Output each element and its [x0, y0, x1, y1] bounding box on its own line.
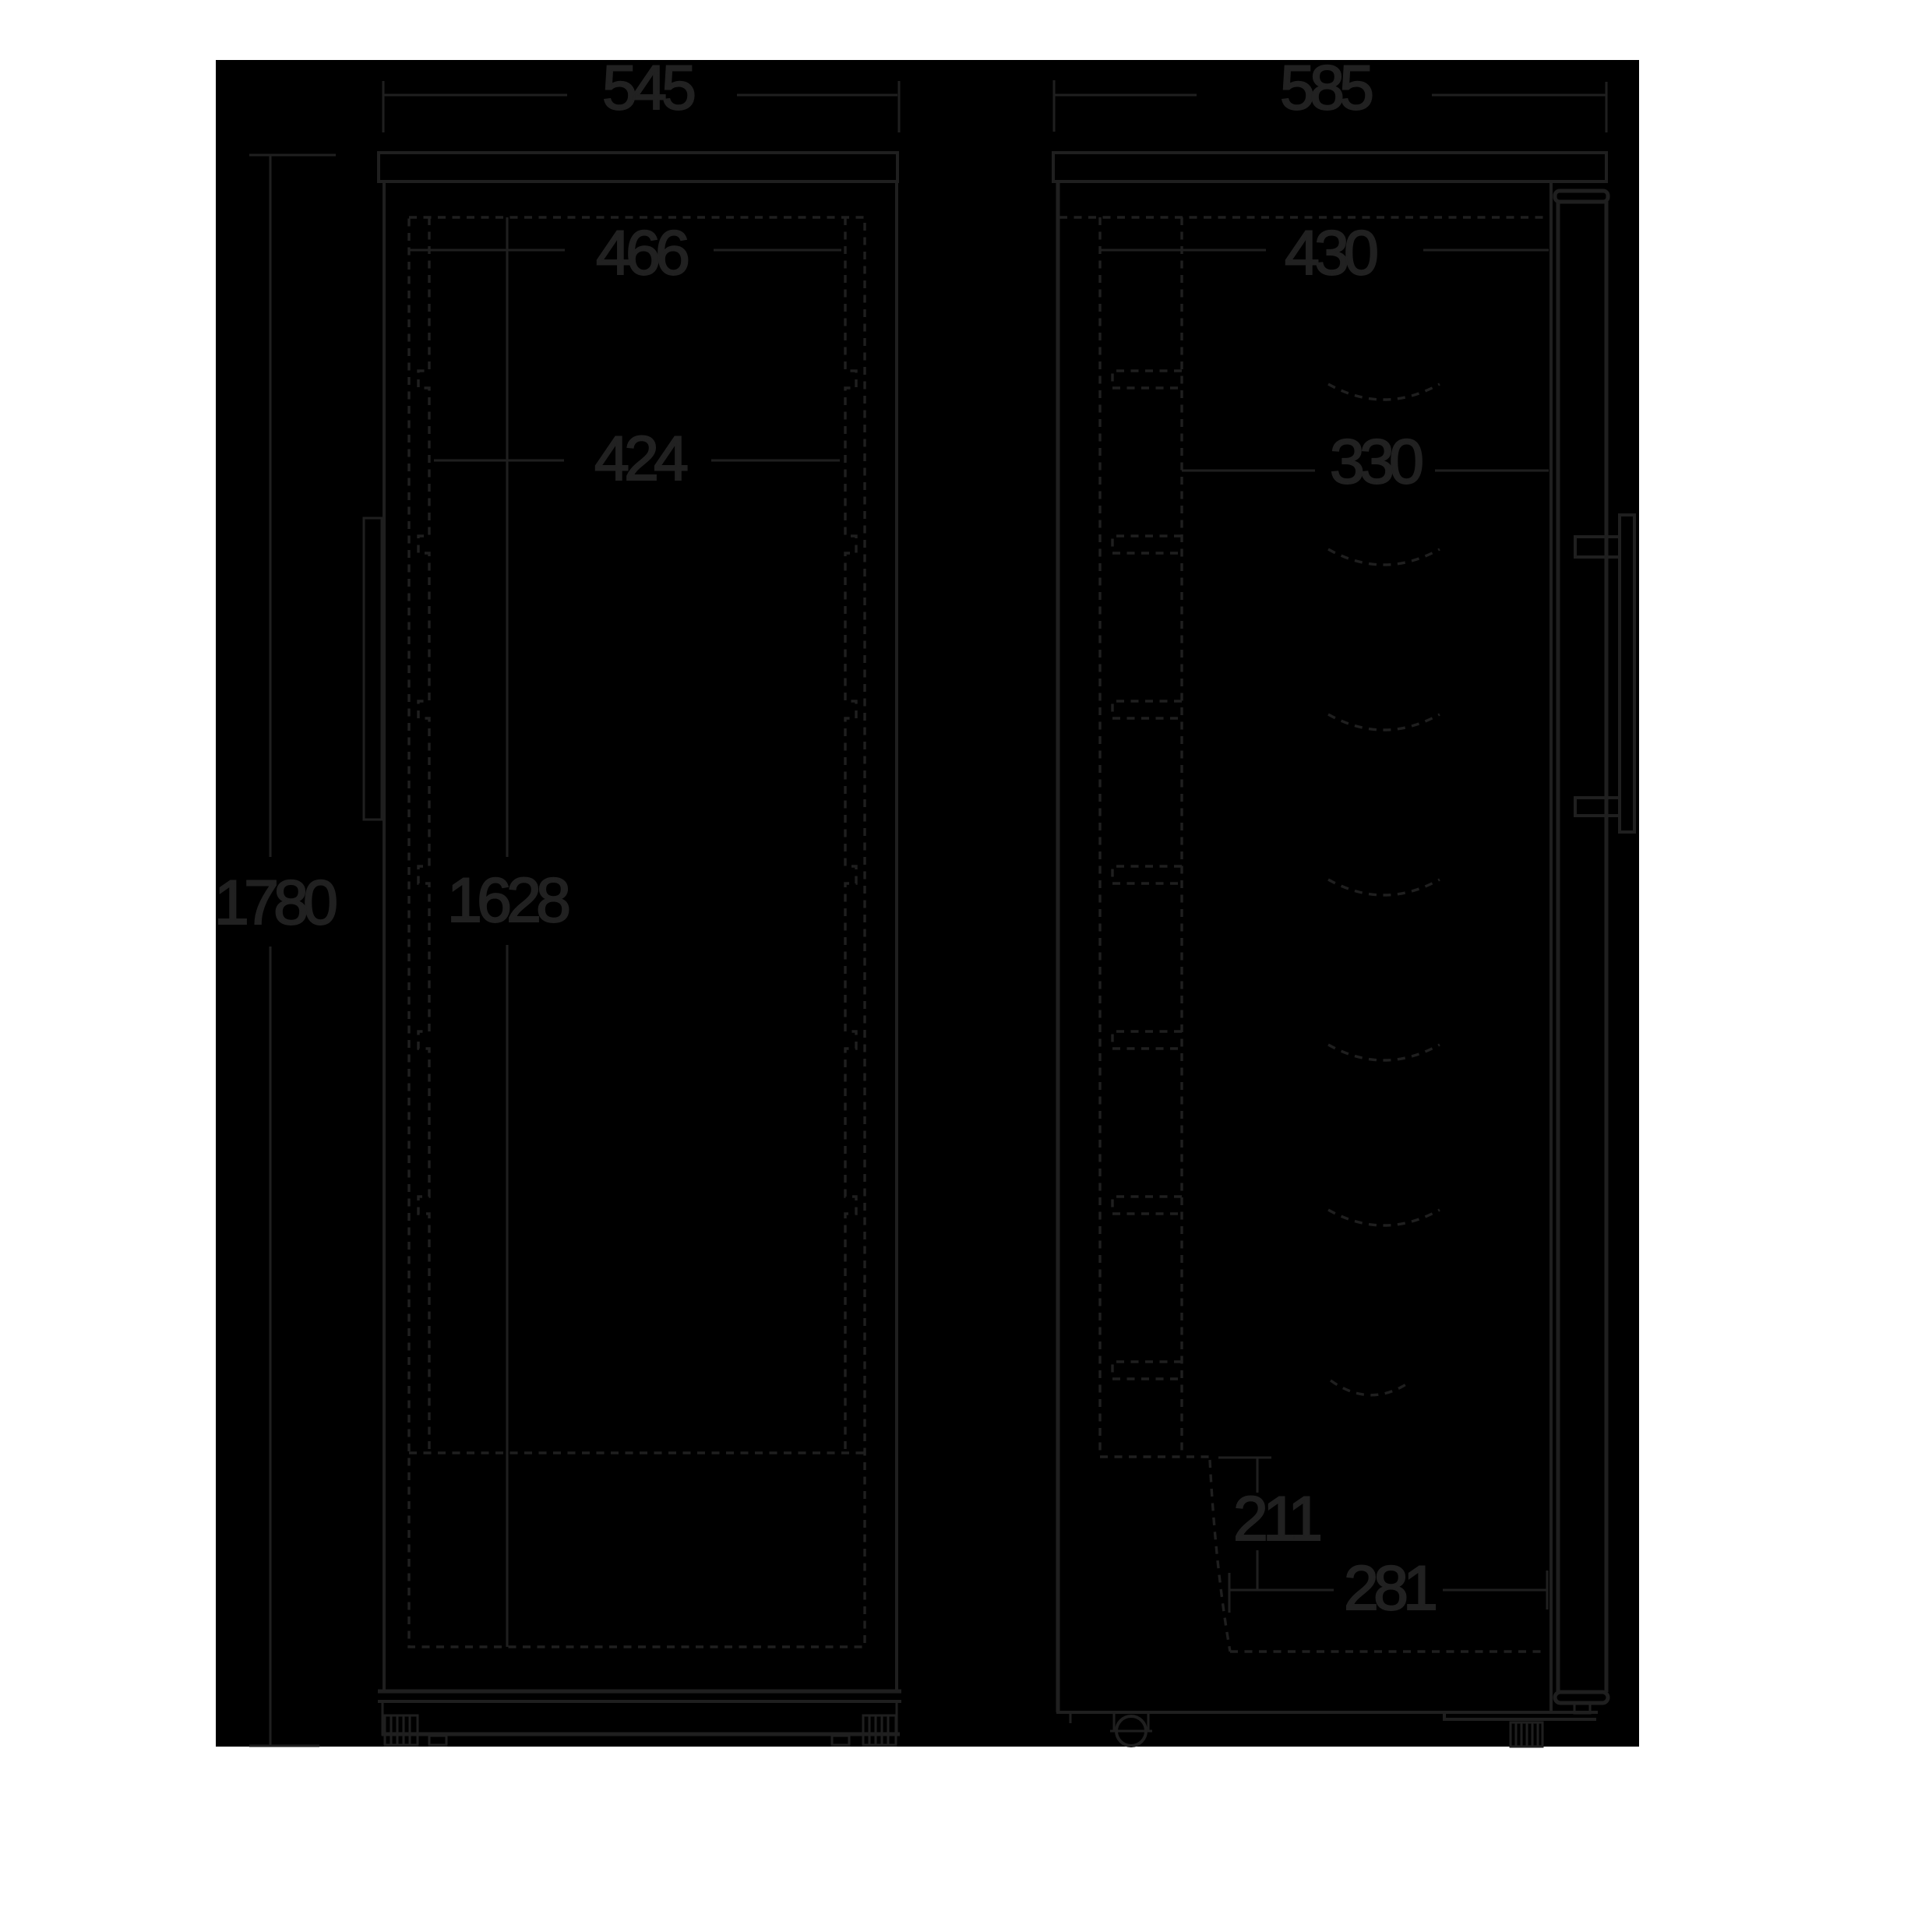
svg-text:211: 211 [1233, 1484, 1320, 1554]
svg-text:1780: 1780 [214, 868, 336, 938]
svg-text:1628: 1628 [447, 866, 569, 936]
svg-text:545: 545 [602, 53, 694, 123]
svg-text:430: 430 [1285, 218, 1377, 288]
svg-text:466: 466 [596, 218, 688, 288]
svg-text:330: 330 [1330, 427, 1422, 497]
svg-text:424: 424 [594, 424, 687, 494]
svg-text:281: 281 [1344, 1553, 1436, 1624]
svg-text:585: 585 [1280, 53, 1372, 123]
